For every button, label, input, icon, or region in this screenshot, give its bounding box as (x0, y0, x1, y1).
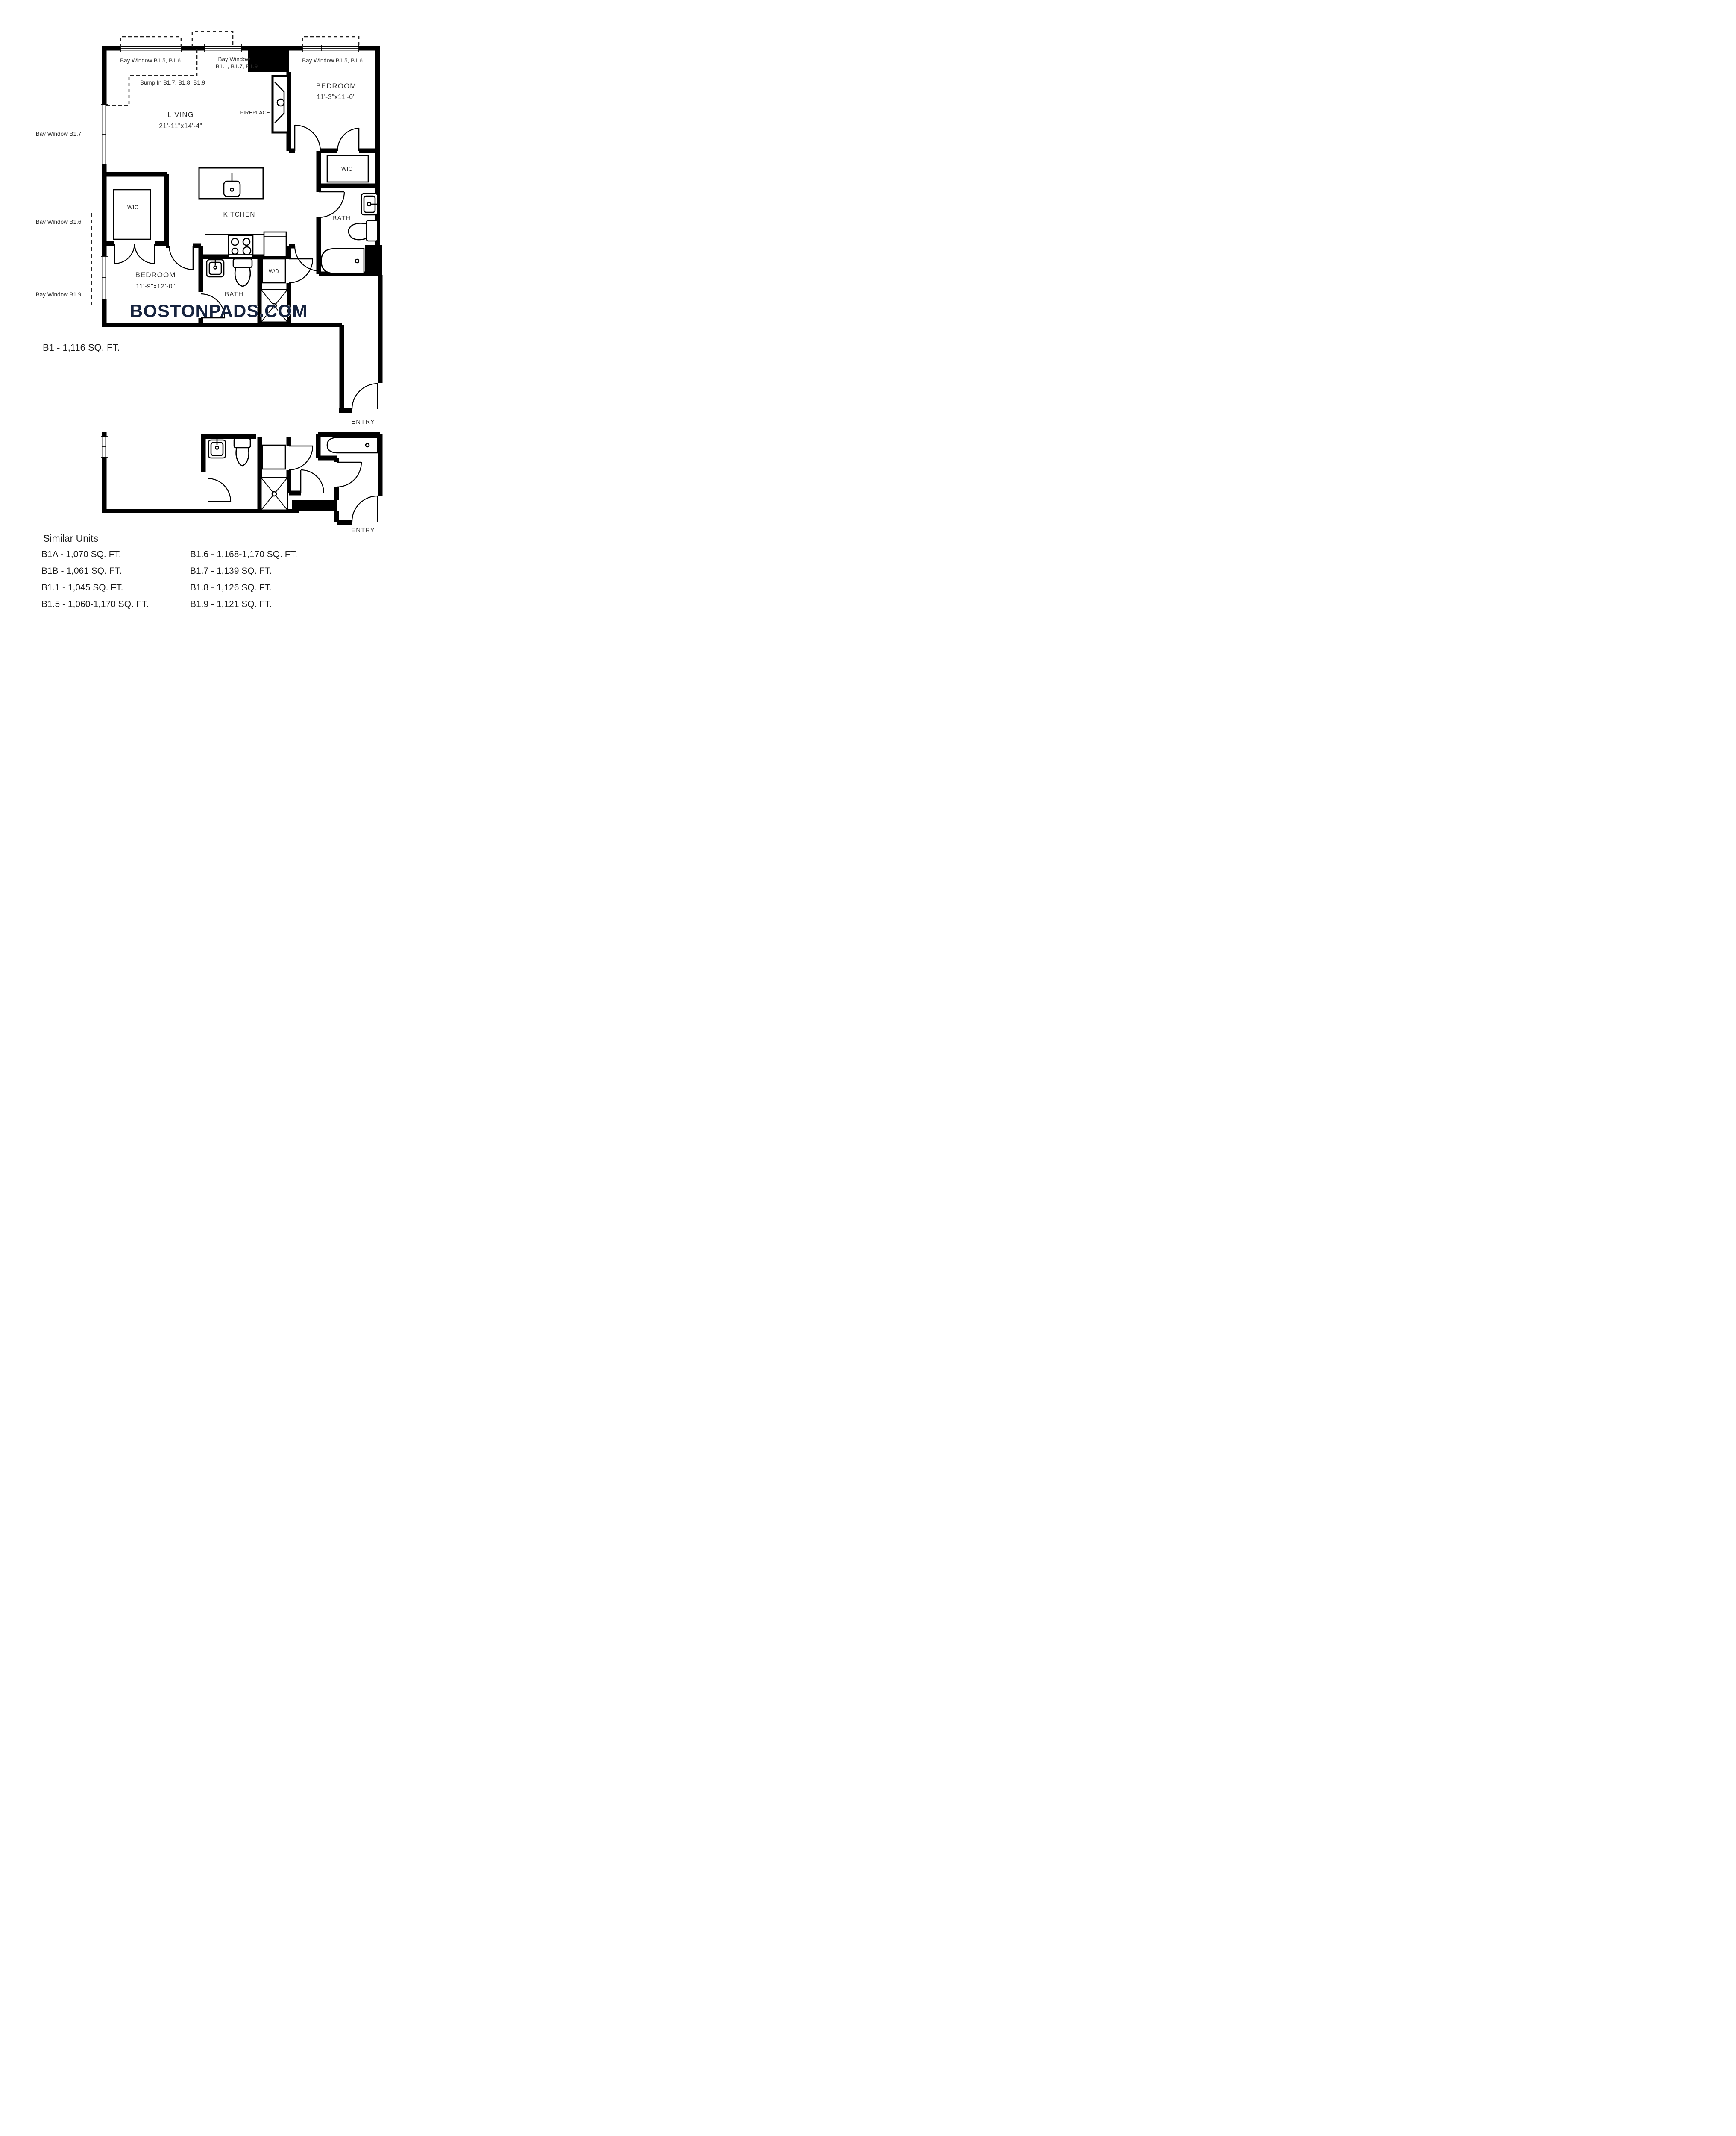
kitchen-counter (205, 232, 287, 258)
watermark: BOSTONPADS.COM (130, 301, 308, 321)
toilet-icon (233, 259, 252, 286)
label-living-dims: 21'-11"x14'-4" (159, 123, 202, 130)
similar-unit-item: B1.9 - 1,121 SQ. FT. (190, 599, 272, 609)
partial-plan-fixtures (208, 437, 378, 510)
fridge-icon (264, 232, 286, 257)
dashed-bay-outline-top-left (120, 37, 181, 47)
bathtub-icon (321, 249, 364, 273)
wic2-closet (114, 190, 150, 239)
floor-plan-page: Bay Window B1.5, B1.6 Bay Window B1.1, B… (0, 0, 434, 616)
label-wic2: WIC (127, 204, 138, 211)
wall-block (365, 245, 382, 275)
wall-block (292, 500, 337, 511)
similar-unit-item: B1.6 - 1,168-1,170 SQ. FT. (190, 549, 297, 559)
fireplace-icon (273, 76, 288, 132)
bathtub-icon (327, 437, 378, 453)
label-bedroom1-dims: 11'-3"x11'-0" (317, 94, 356, 101)
label-bay-window-left-mid: Bay Window B1.6 (36, 219, 82, 225)
similar-unit-item: B1.1 - 1,045 SQ. FT. (41, 583, 123, 593)
label-bedroom2: BEDROOM (135, 271, 176, 279)
sink-icon (208, 437, 226, 458)
kitchen-island (199, 168, 263, 199)
wd-closet (262, 445, 285, 469)
dashed-bay-outline-top-middle (192, 32, 233, 47)
similar-unit-item: B1.8 - 1,126 SQ. FT. (190, 583, 272, 593)
stove-icon (229, 235, 253, 258)
dashed-bay-outline-top-right (302, 37, 359, 47)
shower-icon (261, 478, 287, 510)
sink-icon (207, 257, 224, 277)
similar-unit-item: B1B - 1,061 SQ. FT. (41, 566, 122, 576)
similar-units: Similar Units B1A - 1,070 SQ. FT. B1B - … (41, 533, 297, 609)
similar-units-heading: Similar Units (43, 533, 98, 544)
label-bay-window-top-middle-1: Bay Window (218, 56, 250, 62)
bay-window-bedroom1 (302, 44, 359, 52)
bay-window-living-top (120, 44, 181, 52)
label-bump-in: Bump In B1.7, B1.8, B1.9 (140, 79, 205, 86)
label-bay-window-top-middle-2: B1.1, B1.7, B1.9 (216, 63, 258, 70)
sink-icon (361, 194, 378, 215)
plan-title: B1 - 1,116 SQ. FT. (43, 342, 120, 353)
toilet-icon (349, 220, 378, 241)
label-bay-window-top-left: Bay Window B1.5, B1.6 (120, 57, 181, 64)
label-bay-window-left-upper: Bay Window B1.7 (36, 131, 82, 137)
label-bay-window-left-lower: Bay Window B1.9 (36, 291, 82, 298)
label-wic1: WIC (341, 166, 352, 172)
label-entry-partial: ENTRY (351, 527, 375, 534)
partial-plan-windows (101, 437, 108, 457)
toilet-icon (234, 438, 250, 466)
bay-window-left-living (101, 105, 108, 164)
similar-unit-item: B1.5 - 1,060-1,170 SQ. FT. (41, 599, 149, 609)
label-bay-window-top-right: Bay Window B1.5, B1.6 (302, 57, 363, 64)
similar-unit-item: B1.7 - 1,139 SQ. FT. (190, 566, 272, 576)
label-living: LIVING (167, 111, 194, 119)
bay-window-left-bedroom2 (101, 256, 108, 299)
label-bath1: BATH (332, 215, 351, 222)
floor-plan-svg: Bay Window B1.5, B1.6 Bay Window B1.1, B… (0, 0, 434, 616)
window-living-top (205, 44, 241, 52)
similar-unit-item: B1A - 1,070 SQ. FT. (41, 549, 121, 559)
label-wd: W/D (269, 268, 279, 274)
label-fireplace: FIREPLACE (240, 110, 270, 116)
bath2-fixtures (207, 257, 252, 286)
label-bedroom1: BEDROOM (316, 82, 357, 90)
label-entry-main: ENTRY (351, 418, 375, 425)
label-bath2: BATH (225, 291, 243, 298)
label-bedroom2-dims: 11'-9"x12'-0" (136, 283, 175, 290)
label-kitchen: KITCHEN (223, 211, 255, 218)
